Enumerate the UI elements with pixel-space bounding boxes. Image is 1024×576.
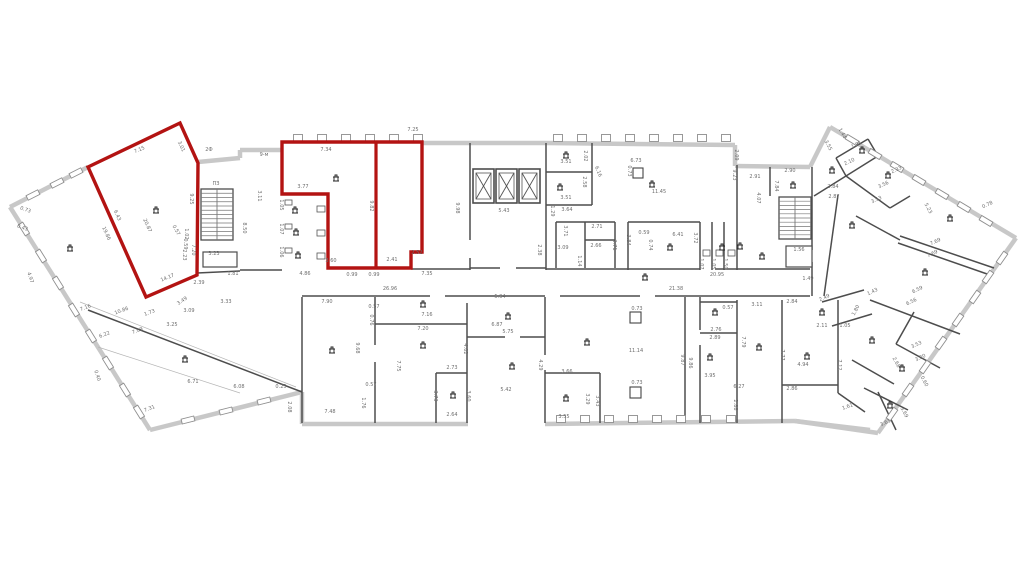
highlighted-unit-2[interactable] bbox=[282, 142, 422, 268]
window-opening bbox=[133, 405, 144, 419]
dimension-label: 0.57 bbox=[170, 224, 181, 237]
dimension-label: 3.53 bbox=[910, 340, 923, 350]
dimension-label: 9.98 bbox=[454, 202, 460, 213]
elevator-shaft bbox=[496, 169, 517, 203]
dimension-label: 3.11 bbox=[256, 190, 262, 201]
room-marker-icon bbox=[333, 175, 339, 181]
dimension-label: 0.25 bbox=[275, 384, 286, 390]
dimension-label: 3.71 bbox=[562, 225, 568, 236]
dimension-label: 1.05 bbox=[710, 258, 716, 269]
window-opening bbox=[85, 329, 96, 343]
elevator-shafts bbox=[473, 169, 540, 203]
dimension-label: 2.73 bbox=[446, 365, 457, 371]
dimension-label: 9-м bbox=[260, 152, 269, 158]
window-opening bbox=[605, 416, 614, 423]
dimension-label: 4.02 bbox=[462, 343, 468, 354]
dimension-label: 0.99 bbox=[346, 272, 357, 278]
dimension-label: 3.95 bbox=[704, 373, 715, 379]
dimension-label: 0.76 bbox=[368, 314, 374, 325]
dimension-label: 2.58 bbox=[581, 176, 587, 187]
dimension-label: 7.20 bbox=[190, 244, 196, 255]
dimension-label: 2.88 bbox=[732, 399, 738, 410]
dimension-label: 7.84 bbox=[773, 180, 779, 191]
room-marker-icon bbox=[153, 207, 159, 213]
dimension-label: 7.20 bbox=[417, 326, 428, 332]
dimension-label: 6.41 bbox=[672, 232, 683, 238]
room-marker-icon bbox=[649, 181, 655, 187]
room-marker-icon bbox=[67, 245, 73, 251]
dimension-label: 2.90 bbox=[784, 168, 795, 174]
dimension-label: 1.05 bbox=[278, 199, 284, 210]
dimension-label: 19.86 bbox=[100, 226, 111, 242]
dimension-label: 11.45 bbox=[652, 189, 666, 195]
dimension-label: 2.10 bbox=[843, 157, 856, 167]
inner-wall bbox=[890, 196, 910, 208]
window-opening bbox=[979, 216, 993, 227]
inner-wall bbox=[870, 300, 960, 334]
room-marker-icon bbox=[420, 342, 426, 348]
fixture bbox=[728, 250, 735, 256]
outer-wall bbox=[198, 158, 240, 162]
window-opening bbox=[727, 416, 736, 423]
dimension-label: 1.50 bbox=[722, 258, 728, 269]
window-opening bbox=[68, 303, 79, 317]
dimension-label: 20.95 bbox=[710, 272, 724, 278]
dimension-label: 2.41 bbox=[386, 257, 397, 263]
dimension-label: 26.96 bbox=[383, 286, 397, 292]
dimension-label: 6.56 bbox=[905, 297, 918, 307]
room-marker-icon bbox=[642, 274, 648, 280]
window-opening bbox=[674, 135, 683, 142]
floor-plan: 7.153.012Ф9-м0.730.434.976.4319.8620.879… bbox=[0, 0, 1024, 576]
dimension-label: 1.29 bbox=[549, 205, 555, 216]
room-marker-icon bbox=[804, 353, 810, 359]
dimension-label: 0.60 bbox=[919, 375, 930, 388]
dimension-label: 20.87 bbox=[141, 218, 152, 234]
dimension-label: 3.72 bbox=[692, 232, 698, 243]
dimension-label: 7.34 bbox=[320, 147, 331, 153]
dimension-label: 7.35 bbox=[421, 271, 432, 277]
room-marker-icon bbox=[737, 243, 743, 249]
room-marker-icon bbox=[505, 313, 511, 319]
window-opening bbox=[722, 135, 731, 142]
room-marker-icon bbox=[887, 402, 893, 408]
dimension-label: 3.51 bbox=[560, 195, 571, 201]
room-marker-icon bbox=[450, 392, 456, 398]
window-opening bbox=[902, 383, 914, 397]
room-marker-icon bbox=[790, 182, 796, 188]
dimension-label: 7.16 bbox=[421, 312, 432, 318]
inner-walls bbox=[88, 139, 994, 430]
window-opening bbox=[969, 290, 981, 304]
window-opening bbox=[50, 178, 64, 188]
dimension-label: 1.14 bbox=[576, 255, 582, 266]
dimension-label: 6.59 bbox=[911, 285, 924, 295]
dimension-label: 2.84 bbox=[827, 184, 838, 190]
dimension-label: 1.07 bbox=[698, 258, 704, 269]
dimension-label: 7.79 bbox=[740, 336, 746, 347]
window-opening bbox=[69, 168, 83, 178]
dimension-label: 2.09 bbox=[733, 149, 739, 160]
room-marker-icon bbox=[563, 152, 569, 158]
structural-columns bbox=[630, 168, 643, 398]
fixture bbox=[317, 230, 325, 236]
dimension-label: 1.07 bbox=[278, 223, 284, 234]
dimension-label: 6.87 bbox=[491, 322, 502, 328]
dimension-label: 1.81 bbox=[227, 271, 238, 277]
window-opening bbox=[578, 135, 587, 142]
window-opening bbox=[119, 383, 130, 397]
room-marker-icon bbox=[329, 347, 335, 353]
dimension-label: 0.57 bbox=[722, 305, 733, 311]
room-marker-icon bbox=[295, 252, 301, 258]
window-opening bbox=[650, 135, 659, 142]
dimension-label: 4.29 bbox=[537, 359, 543, 370]
dimension-label: 3.84 bbox=[625, 234, 631, 245]
outer-wall bbox=[735, 166, 810, 167]
window-opening bbox=[181, 416, 195, 424]
dimension-label: 7.77 bbox=[779, 349, 785, 360]
inner-wall bbox=[824, 195, 838, 296]
window-opening bbox=[935, 336, 947, 350]
dimension-label: 0.59 bbox=[638, 230, 649, 236]
dimension-label: 6.71 bbox=[187, 379, 198, 385]
dimension-label: 2.38 bbox=[536, 244, 542, 255]
dimension-label: 4.97 bbox=[25, 271, 34, 283]
dimension-label: 7.12 bbox=[836, 359, 842, 370]
dimension-label: 0.78 bbox=[981, 200, 994, 210]
dimension-label: 2Ф bbox=[205, 147, 213, 153]
dimension-label: 3.53 bbox=[870, 195, 883, 205]
dimension-label: 3.09 bbox=[557, 245, 568, 251]
dimension-label: 3.29 bbox=[584, 393, 590, 404]
dimension-label: 3.61 bbox=[879, 418, 892, 428]
dimension-label: 3.71 bbox=[611, 239, 617, 250]
dimension-label: 7.69 bbox=[926, 249, 939, 259]
structural-column bbox=[630, 387, 641, 398]
dimension-label: 1.80 bbox=[851, 304, 862, 317]
dimension-label: 2.76 bbox=[710, 327, 721, 333]
dimension-label: 2.66 bbox=[590, 243, 601, 249]
window-opening bbox=[702, 416, 711, 423]
dimension-label: 7.48 bbox=[324, 409, 335, 415]
room-marker-icon bbox=[712, 309, 718, 315]
window-opening bbox=[996, 251, 1008, 265]
dimension-label: 5.75 bbox=[502, 329, 513, 335]
elevator-shaft bbox=[519, 169, 540, 203]
outer-wall bbox=[10, 207, 150, 430]
dimension-label: 6.08 bbox=[233, 384, 244, 390]
room-marker-icon bbox=[885, 172, 891, 178]
dimension-label: 6.27 bbox=[733, 384, 744, 390]
dimension-label: 5.43 bbox=[498, 208, 509, 214]
elevator-shaft bbox=[473, 169, 494, 203]
dimension-label: 0.57 bbox=[368, 304, 379, 310]
inner-wall bbox=[898, 243, 990, 275]
dimension-label: 4.94 bbox=[797, 362, 808, 368]
room-marker-icon bbox=[182, 356, 188, 362]
dimension-label: 3.73 bbox=[432, 390, 438, 401]
outer-wall bbox=[795, 421, 878, 433]
room-marker-icon bbox=[759, 253, 765, 259]
fixture bbox=[285, 224, 292, 229]
room-marker-icon bbox=[667, 244, 673, 250]
dimension-label: 1.06 bbox=[278, 246, 284, 257]
dimension-label: 3.33 bbox=[220, 299, 231, 305]
fixture bbox=[317, 253, 325, 259]
dimension-label: 7.69 bbox=[929, 237, 942, 247]
dimension-label: 9.23 bbox=[731, 169, 737, 180]
dimension-label: 1.76 bbox=[360, 397, 366, 408]
room-marker-icon bbox=[756, 344, 762, 350]
window-opening bbox=[698, 135, 707, 142]
dimension-label: 11.14 bbox=[629, 348, 643, 354]
dimension-label: 0.99 bbox=[368, 272, 379, 278]
fixture bbox=[317, 206, 325, 212]
dimension-label: 5.23 bbox=[923, 202, 934, 215]
dimension-label: 10.86 bbox=[114, 306, 130, 317]
room-marker-icon bbox=[819, 309, 825, 315]
dimension-label: 4.07 bbox=[755, 192, 761, 203]
dimension-label: 21.38 bbox=[669, 286, 683, 292]
dimension-label: 3.60 bbox=[465, 390, 471, 401]
room-marker-icon bbox=[563, 395, 569, 401]
window-opening bbox=[952, 313, 964, 327]
dimension-label: 6.16 bbox=[593, 165, 603, 178]
dimension-label: 0.40 bbox=[92, 369, 101, 381]
dimension-label: ПЗ bbox=[213, 181, 220, 187]
dimension-label: 1.43 bbox=[866, 287, 879, 297]
window-opening bbox=[957, 202, 971, 213]
dimension-label: 2.64 bbox=[446, 412, 457, 418]
dimension-label: 2.89 bbox=[709, 335, 720, 341]
inner-wall bbox=[856, 216, 900, 240]
room-marker-icon bbox=[707, 354, 713, 360]
dimension-label: 3.01 bbox=[176, 140, 186, 153]
window-opening bbox=[653, 416, 662, 423]
dimension-label: 3.25 bbox=[166, 322, 177, 328]
window-opening bbox=[912, 175, 926, 186]
dimension-label: 9.82 bbox=[368, 200, 374, 211]
window-opening bbox=[554, 135, 563, 142]
dimension-label: 2.71 bbox=[591, 224, 602, 230]
room-marker-icon bbox=[869, 337, 875, 343]
dimension-label: 3.23 bbox=[208, 251, 219, 257]
fixture bbox=[716, 250, 723, 256]
dimension-label: 2.87 bbox=[828, 194, 839, 200]
dimension-label: 1.56 bbox=[793, 247, 804, 253]
room-marker-icon bbox=[849, 222, 855, 228]
dimension-label: 3.55 bbox=[823, 139, 834, 152]
dimension-label: 8.50 bbox=[241, 222, 247, 233]
room-marker-icon bbox=[293, 229, 299, 235]
dimension-label: 3.56 bbox=[877, 180, 890, 190]
dimension-label: 7.15 bbox=[133, 145, 146, 155]
structural-column bbox=[630, 312, 641, 323]
dimension-label: 7.31 bbox=[143, 404, 156, 414]
room-marker-icon bbox=[557, 184, 563, 190]
dimension-label: 7.75 bbox=[395, 360, 401, 371]
dimension-label: 1.05 bbox=[839, 323, 850, 329]
room-marker-icon bbox=[584, 339, 590, 345]
room-marker-icon bbox=[509, 363, 515, 369]
dimension-label: 3.09 bbox=[183, 308, 194, 314]
dimension-label: 0.73 bbox=[631, 380, 642, 386]
structural-column bbox=[633, 168, 643, 178]
dimension-label: 2.02 bbox=[582, 150, 588, 161]
inner-wall bbox=[900, 236, 994, 268]
dimension-label: 3.69 bbox=[899, 406, 910, 419]
fixture bbox=[703, 250, 710, 256]
room-marker-icon bbox=[922, 269, 928, 275]
window-opening bbox=[629, 416, 638, 423]
dimension-label: 2.91 bbox=[749, 174, 760, 180]
room-marker-icon bbox=[292, 207, 298, 213]
dimension-label: 3.43 bbox=[594, 395, 600, 406]
fixture bbox=[285, 248, 292, 253]
dimension-label: 2.11 bbox=[816, 323, 827, 329]
dimension-label: 2.52 bbox=[411, 250, 422, 256]
dimension-label: 1.61 bbox=[841, 402, 854, 411]
dimension-label: 3.77 bbox=[297, 184, 308, 190]
staircase bbox=[779, 197, 811, 239]
dimension-label: 4.86 bbox=[299, 271, 310, 277]
dimension-label: 9.86 bbox=[687, 357, 693, 368]
outer-wall bbox=[878, 238, 1016, 433]
floor-plan-canvas: 7.153.012Ф9-м0.730.434.976.4319.8620.879… bbox=[0, 0, 1024, 576]
window-opening bbox=[626, 135, 635, 142]
dimension-label: 1.73 bbox=[143, 308, 156, 318]
dimension-label: 9.68 bbox=[354, 342, 360, 353]
dimension-label: 3.51 bbox=[560, 159, 571, 165]
dimension-label: 0.73 bbox=[631, 306, 642, 312]
dimension-label: 9.87 bbox=[679, 354, 685, 365]
dimension-label: 3.55 bbox=[558, 414, 569, 420]
dimension-label: 7.90 bbox=[321, 299, 332, 305]
dimension-label: 6.73 bbox=[630, 158, 641, 164]
window-opening bbox=[102, 356, 113, 370]
dimension-label: 2.23 bbox=[181, 249, 187, 260]
dimension-label: 0.73 bbox=[19, 205, 32, 214]
window-opening bbox=[677, 416, 686, 423]
inner-wall bbox=[896, 312, 914, 344]
fixture bbox=[285, 200, 292, 205]
dimension-label: 0.57 bbox=[365, 382, 376, 388]
dimension-label: 5.42 bbox=[500, 387, 511, 393]
dimension-label: 3.49 bbox=[176, 296, 189, 307]
room-marker-icon bbox=[420, 301, 426, 307]
outer-wall bbox=[546, 143, 735, 145]
staircase bbox=[201, 189, 233, 240]
dimension-label: 3.64 bbox=[561, 207, 572, 213]
dimension-label: 0.73 bbox=[626, 165, 632, 176]
dimension-label: 3.66 bbox=[561, 369, 572, 375]
window-opening bbox=[219, 407, 233, 415]
window-opening bbox=[257, 397, 271, 405]
dimension-label: 1.49 bbox=[802, 276, 813, 282]
window-opening bbox=[52, 276, 63, 290]
dimension-label: 0.59 bbox=[182, 238, 188, 249]
dimension-label: 2.86 bbox=[786, 386, 797, 392]
dimension-label: 9.25 bbox=[188, 193, 194, 204]
window-opening bbox=[581, 416, 590, 423]
dimension-label: 6.22 bbox=[98, 330, 111, 340]
room-marker-icon bbox=[947, 215, 953, 221]
window-opening bbox=[935, 189, 949, 200]
window-opening bbox=[26, 190, 40, 200]
inner-wall bbox=[852, 360, 894, 384]
dimension-label: 3.11 bbox=[751, 302, 762, 308]
window-opening bbox=[35, 249, 46, 263]
dimension-label: 0.74 bbox=[647, 239, 653, 250]
window-opening bbox=[919, 360, 931, 374]
dimension-label: 2.84 bbox=[786, 299, 797, 305]
dimension-label: 7.25 bbox=[407, 127, 418, 133]
room-marker-icon bbox=[829, 167, 835, 173]
window-opening bbox=[602, 135, 611, 142]
dimension-label: 2.08 bbox=[286, 401, 292, 412]
dimension-label: 5.94 bbox=[494, 294, 505, 300]
dimension-label: 3.60 bbox=[325, 258, 336, 264]
dimension-label: 14.17 bbox=[160, 273, 176, 284]
dimension-label: 2.39 bbox=[193, 280, 204, 286]
